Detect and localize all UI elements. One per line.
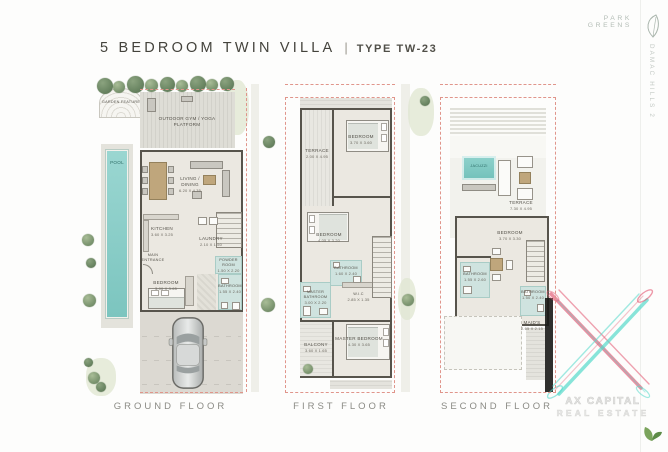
watermark-x-logo bbox=[545, 288, 663, 406]
side-project-label: DAMAC HILLS 2 bbox=[648, 44, 655, 119]
entry-porch bbox=[197, 274, 216, 310]
tree-icon bbox=[84, 358, 93, 367]
plot-boundary-dash bbox=[246, 88, 247, 392]
floor-name-ground: GROUND FLOOR bbox=[103, 401, 238, 412]
sofa bbox=[190, 161, 223, 169]
room-label-bedroom2: BEDROOM 3.70 X 3.60 bbox=[338, 134, 384, 145]
ground-floor-plan: GARDEN FEATURE OUTDOOR GYM / YOGA PLATFO… bbox=[85, 78, 248, 396]
watermark-line2: REAL ESTATE bbox=[545, 408, 661, 418]
room-label-living-dining: LIVING / DINING 6.20 X 4.35 bbox=[173, 176, 207, 193]
wardrobe bbox=[185, 276, 194, 306]
room-label-bedroom3: BEDROOM 4.05 X 3.20 bbox=[309, 232, 349, 243]
plot-boundary-dash bbox=[140, 392, 243, 393]
tree-icon bbox=[145, 79, 158, 92]
room-label-master-bath: MASTER BATHROOM 3.00 X 2.20 bbox=[300, 290, 331, 305]
room-label-wic: W.I.C 2.85 X 1.35 bbox=[342, 292, 375, 302]
floor-plan-sheet: 5 BEDROOM TWIN VILLA | TYPE TW-23 PARK G… bbox=[0, 0, 668, 452]
tree-icon bbox=[402, 294, 414, 306]
toilet bbox=[221, 302, 228, 309]
bed-blanket bbox=[149, 297, 184, 308]
second-floor-plan: JACUZZI TERRACE 7.30 X 4.95 BEDROOM 3.70… bbox=[438, 90, 558, 392]
watermark-line1: AX CAPITAL bbox=[545, 396, 661, 407]
tree-icon bbox=[97, 78, 113, 94]
first-floor-plan: TERRACE 2.00 X 4.95 BEDROOM 3.70 X 3.60 … bbox=[283, 90, 398, 392]
tree-icon bbox=[113, 81, 125, 93]
floor-name-first: FIRST FLOOR bbox=[285, 401, 397, 412]
plot-boundary-dash bbox=[440, 84, 556, 85]
room-label-bathroom-left: BATHROOM 1.55 X 2.60 bbox=[460, 272, 490, 282]
tree-icon bbox=[127, 76, 144, 93]
shower bbox=[232, 302, 240, 310]
tree-icon bbox=[86, 258, 96, 268]
room-label-terrace2: TERRACE 7.30 X 4.95 bbox=[498, 200, 544, 211]
walkway-strip bbox=[401, 84, 410, 392]
room-label-outdoor-gym: OUTDOOR GYM / YOGA PLATFORM bbox=[155, 116, 219, 128]
tree-icon bbox=[96, 382, 106, 392]
sofa bbox=[222, 170, 230, 197]
room-label-bathroom-right: BATHROOM 1.50 X 2.40 bbox=[520, 290, 546, 300]
tree-icon bbox=[176, 80, 188, 92]
tree-icon bbox=[83, 294, 96, 307]
leaf-icon bbox=[643, 13, 663, 39]
gym-equipment bbox=[147, 98, 156, 112]
chair bbox=[142, 166, 148, 173]
room-label-garden-feature: GARDEN FEATURE bbox=[101, 100, 141, 105]
title-type: TYPE TW-23 bbox=[357, 43, 438, 55]
lawn-patch bbox=[408, 88, 434, 136]
room-label-entrance: MAIN ENTRANCE bbox=[141, 253, 165, 263]
washer bbox=[198, 217, 207, 225]
room-label-master-bedroom: MASTER BEDROOM 4.30 X 3.65 bbox=[335, 336, 383, 347]
title-divider: | bbox=[344, 40, 347, 55]
chair bbox=[142, 188, 148, 195]
plot-boundary-dash bbox=[140, 89, 235, 90]
tree-icon bbox=[82, 234, 94, 246]
brand-label: PARK GREENS bbox=[560, 15, 632, 29]
room-label-bedroom5: BEDROOM 3.70 X 3.30 bbox=[488, 230, 532, 241]
floor-name-second: SECOND FLOOR bbox=[438, 401, 556, 412]
room-label-laundry: LAUNDRY 2.10 X 1.50 bbox=[195, 236, 227, 247]
sprout-icon bbox=[640, 420, 664, 444]
plot-boundary-dash bbox=[440, 97, 556, 393]
room-label-bathroom: BATHROOM 1.55 X 2.40 bbox=[218, 284, 242, 294]
tree-icon bbox=[261, 298, 275, 312]
dining-table bbox=[149, 162, 167, 200]
room-label-bathroom: BATHROOM 1.60 X 2.40 bbox=[330, 266, 362, 276]
title-main: 5 BEDROOM TWIN VILLA bbox=[100, 40, 335, 56]
plot-boundary-dash bbox=[285, 84, 395, 85]
walkway-strip bbox=[251, 84, 259, 392]
room-label-maids: MAID'S 2.65 X 2.15 bbox=[514, 320, 550, 331]
room-label-powder: POWDER ROOM 1.50 X 2.20 bbox=[215, 258, 242, 273]
tree-icon bbox=[420, 96, 430, 106]
room-label-bedroom: BEDROOM 3.00 X 3.65 bbox=[149, 280, 183, 291]
room-label-jacuzzi: JACUZZI bbox=[462, 164, 496, 169]
gym-equipment bbox=[181, 96, 193, 102]
car-icon bbox=[166, 316, 210, 390]
tree-icon bbox=[263, 136, 275, 148]
pool bbox=[106, 150, 128, 318]
room-label-kitchen: KITCHEN 3.60 X 3.25 bbox=[146, 226, 178, 237]
dryer bbox=[209, 217, 218, 225]
room-label-terrace: TERRACE 2.00 X 4.95 bbox=[302, 148, 332, 159]
page-title: 5 BEDROOM TWIN VILLA | TYPE TW-23 bbox=[100, 40, 437, 56]
room-label-pool: POOL bbox=[106, 160, 128, 166]
room-label-balcony: BALCONY 3.60 X 1.65 bbox=[300, 342, 332, 353]
chair bbox=[142, 177, 148, 184]
chair bbox=[168, 166, 174, 173]
